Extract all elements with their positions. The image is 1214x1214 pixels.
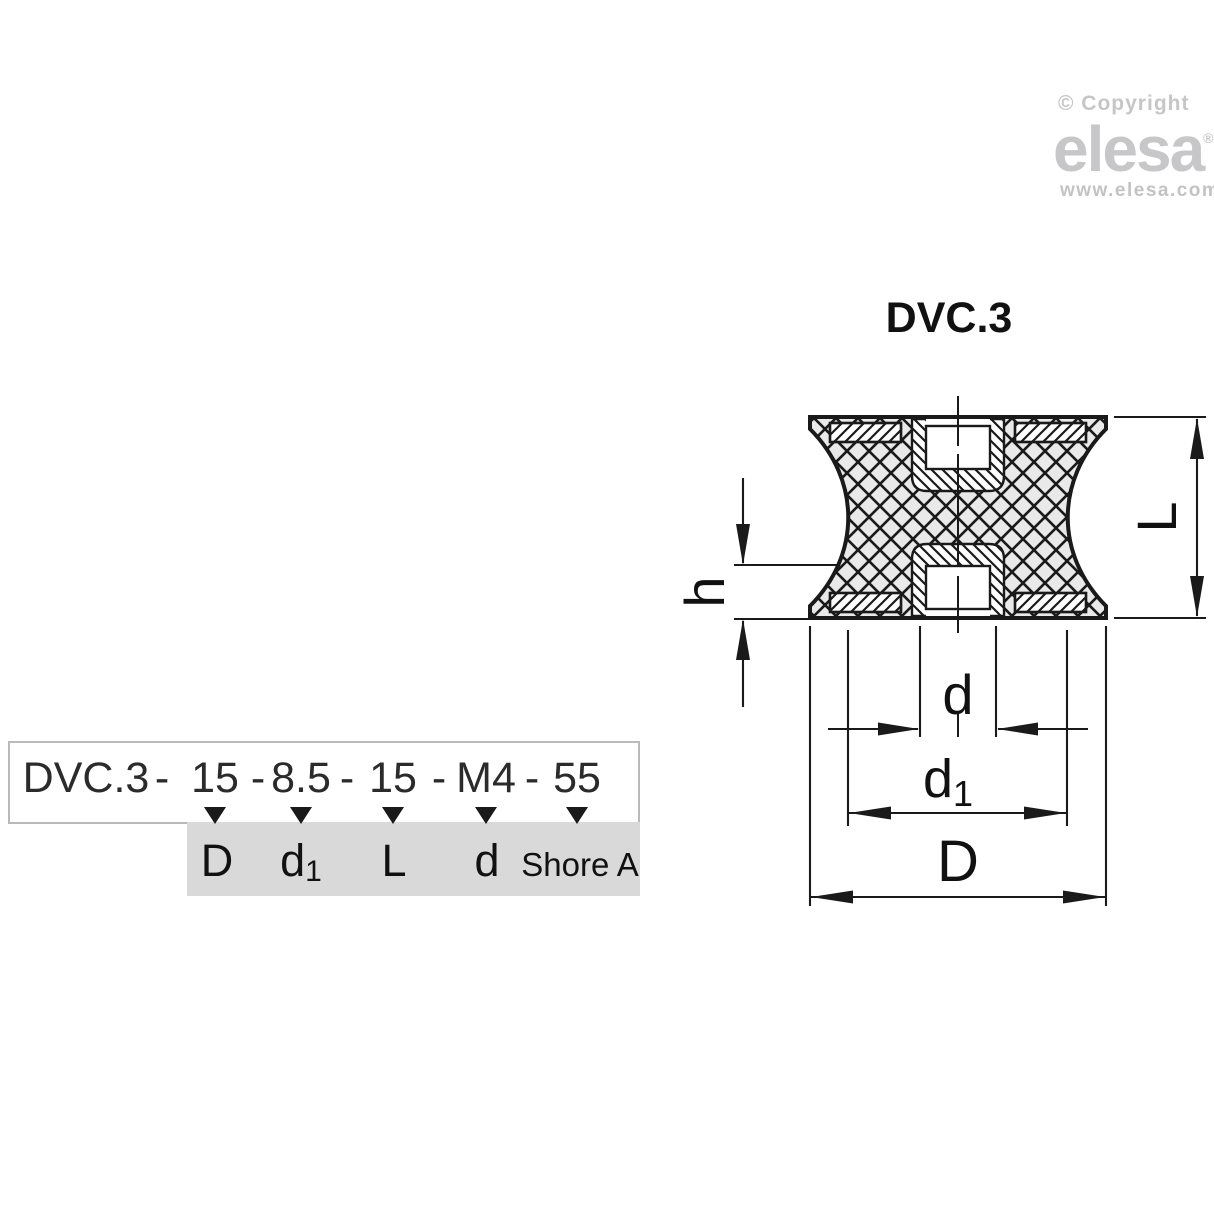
- dim-label-d1: d1: [923, 749, 973, 814]
- code-token: DVC.3: [23, 757, 150, 800]
- down-arrow-marker: [566, 807, 588, 824]
- down-arrow-marker: [475, 807, 497, 824]
- code-token: -: [155, 757, 169, 800]
- technical-drawing: L h d d1 D: [0, 0, 1214, 1214]
- code-token: 55: [553, 757, 601, 800]
- dimension-d: d: [828, 626, 1088, 737]
- code-token: 15: [191, 757, 239, 800]
- code-token: 8.5: [271, 757, 331, 800]
- code-token: -: [432, 757, 446, 800]
- legend-label-D: D: [201, 838, 234, 883]
- down-arrow-marker: [204, 807, 226, 824]
- legend-label-L: L: [381, 838, 406, 883]
- dim-label-L: L: [1125, 501, 1188, 532]
- code-token: M4: [456, 757, 516, 800]
- code-token: 15: [369, 757, 417, 800]
- legend-label-d1: d1: [280, 838, 322, 883]
- code-token: -: [251, 757, 265, 800]
- page: © Copyright elesa® www.elesa.com DVC.3: [0, 0, 1214, 1214]
- down-arrow-marker: [382, 807, 404, 824]
- dim-label-h: h: [673, 576, 736, 607]
- dim-label-D: D: [937, 829, 979, 894]
- down-arrow-marker: [290, 807, 312, 824]
- code-token: -: [525, 757, 539, 800]
- legend-label-shore-a: Shore A: [521, 848, 638, 881]
- legend-label-d: d: [474, 838, 499, 883]
- code-token: -: [340, 757, 354, 800]
- dim-label-d: d: [942, 663, 973, 726]
- dimension-L: L: [1114, 417, 1206, 618]
